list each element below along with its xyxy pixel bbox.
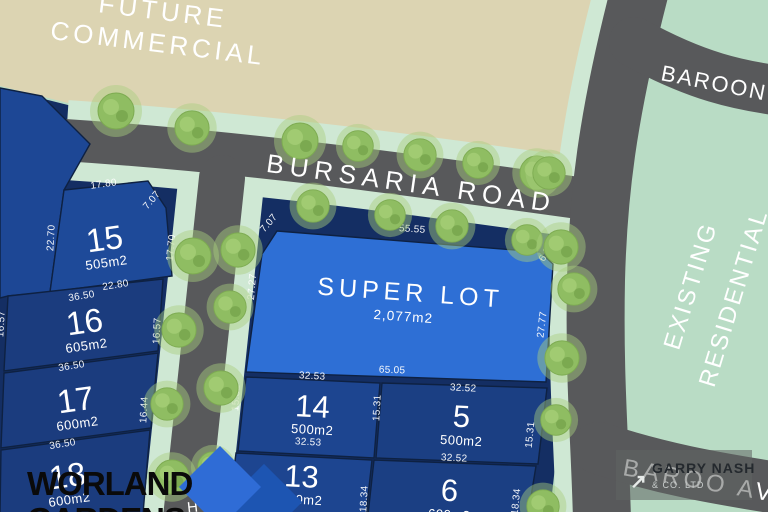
- superlot: [246, 231, 553, 382]
- tree-icon: [536, 222, 585, 271]
- lot-5-area: 500m2: [440, 432, 483, 449]
- tree-icon: [144, 381, 191, 428]
- watermark-arrow-icon: ↗: [630, 471, 647, 493]
- subdivision-plan-map: 17.80 7.07 22.70 17.70 22.80 36.50 16.57…: [0, 0, 768, 512]
- dimension-label: 32.53: [299, 370, 326, 382]
- tree-icon: [551, 266, 598, 313]
- tree-icon: [429, 203, 476, 250]
- tree-icon: [537, 333, 586, 382]
- dimension-label: 32.52: [450, 382, 477, 394]
- dimension-label: 32.53: [295, 436, 322, 448]
- tree-icon: [90, 85, 142, 137]
- logo-line-2: GARDENS: [27, 501, 185, 512]
- watermark: ↗ GARRY NASH & CO. LTD: [616, 450, 755, 500]
- dimension-label: 18.34: [358, 485, 370, 512]
- dimension-label: 32.52: [441, 452, 468, 464]
- lot-5-number: 5: [452, 399, 471, 435]
- tree-icon: [213, 225, 262, 274]
- dimension-label: 22.70: [45, 224, 57, 251]
- lot-6-area: 600m2: [428, 506, 471, 512]
- watermark-name: GARRY NASH: [652, 460, 755, 476]
- tree-icon: [207, 284, 254, 331]
- tree-icon: [167, 230, 219, 282]
- tree-icon: [534, 398, 578, 442]
- tree-icon: [368, 193, 412, 237]
- logo-line-1: WORLAND: [27, 465, 192, 502]
- watermark-sub: & CO. LTD: [652, 480, 704, 490]
- dimension-label: 65.05: [379, 365, 406, 377]
- tree-icon: [154, 305, 203, 354]
- tree-icon: [167, 103, 216, 152]
- lot-6-number: 6: [440, 473, 459, 509]
- lot-14-number: 14: [294, 388, 330, 425]
- dimension-label: 15.31: [371, 394, 383, 421]
- tree-icon: [196, 363, 245, 412]
- lot-14-area: 500m2: [291, 421, 334, 438]
- tree-icon: [290, 183, 337, 230]
